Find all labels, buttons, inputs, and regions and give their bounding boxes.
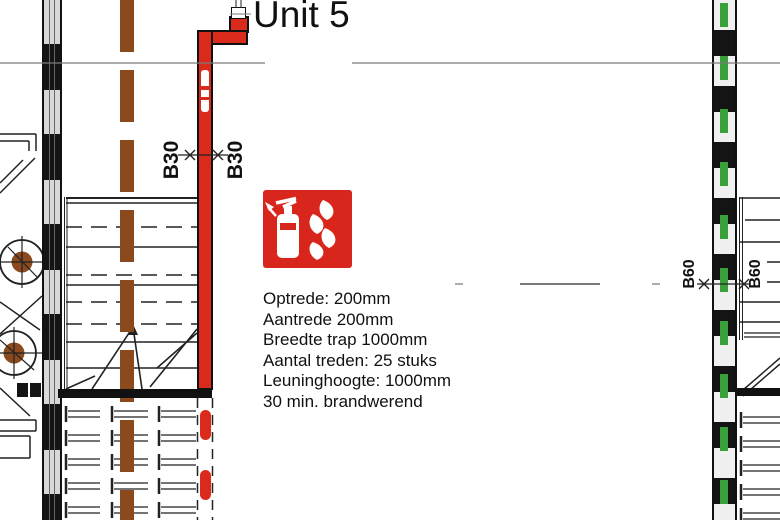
- stair-spec-line: 30 min. brandwerend: [263, 392, 451, 413]
- fire-extinguisher-pictogram: [263, 190, 352, 268]
- fire-extinguisher-icon: [263, 190, 352, 268]
- fire-wall-dashed-segment: [200, 410, 211, 440]
- dimension-label-b30-right: B30: [224, 141, 248, 180]
- dimension-label-b60-right: B60: [747, 259, 765, 288]
- landing-wall-right: [737, 388, 780, 396]
- stair-spec-line: Leuninghoogte: 1000mm: [263, 371, 451, 392]
- unit-title: Unit 5: [253, 0, 350, 37]
- landing-wall-left: [58, 389, 212, 398]
- stair-spec-line: Aantrede 200mm: [263, 310, 451, 331]
- fire-wall-dashed-segment: [200, 470, 211, 500]
- party-wall-right-b60: [712, 0, 737, 520]
- door-frame: [231, 7, 246, 19]
- stair-spec-line: Optrede: 200mm: [263, 289, 451, 310]
- fire-wall-opening: [201, 70, 209, 112]
- plan-linework-under: [0, 0, 780, 520]
- stair-specifications: Optrede: 200mm Aantrede 200mm Breedte tr…: [263, 289, 451, 412]
- stair-spec-line: Breedte trap 1000mm: [263, 330, 451, 351]
- insulation-green-bars: [720, 0, 728, 520]
- dimension-label-b30-left: B30: [160, 141, 184, 180]
- floor-plan-canvas: Unit 5 B30 B30 B60 B60 Optrede: 200mm Aa…: [0, 0, 780, 520]
- dimension-label-b60-left: B60: [681, 259, 699, 288]
- stair-spec-line: Aantal treden: 25 stuks: [263, 351, 451, 372]
- hidden-beam-dashed-line: [120, 0, 134, 520]
- plan-linework-over: [0, 0, 780, 520]
- party-wall-left: [42, 0, 62, 520]
